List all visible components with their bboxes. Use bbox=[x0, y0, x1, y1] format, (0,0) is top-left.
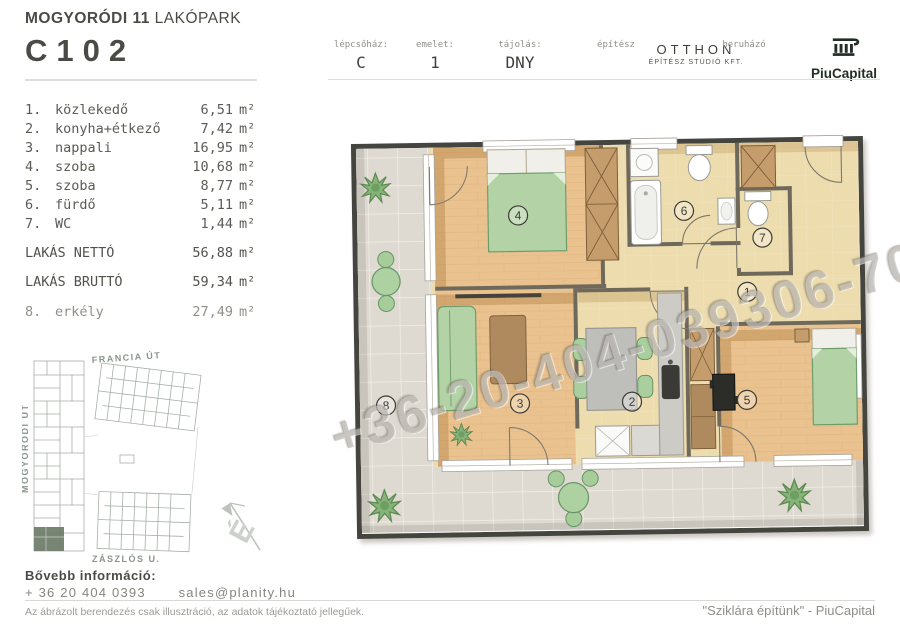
corridor-cabinets bbox=[690, 328, 716, 448]
project-title-rest: LAKÓPARK bbox=[150, 10, 241, 27]
total-unit: m² bbox=[239, 273, 263, 292]
balcony-row: 8.erkély27,49m² bbox=[25, 303, 263, 322]
bathtub bbox=[631, 180, 662, 244]
room-unit: m² bbox=[239, 158, 263, 177]
room-num: 5. bbox=[25, 177, 55, 196]
field-staircase-value: C bbox=[328, 53, 394, 72]
field-investor-label-box: beruházó bbox=[722, 40, 766, 50]
room-row: 1.közlekedő6,51m² bbox=[25, 101, 263, 120]
total-label: LAKÁS BRUTTÓ bbox=[25, 273, 123, 292]
field-floor-value: 1 bbox=[404, 53, 466, 72]
field-floor: emelet: 1 bbox=[404, 40, 466, 72]
room-area: 1,44 bbox=[71, 215, 233, 234]
svg-text:2: 2 bbox=[629, 395, 636, 409]
room-num: 4. bbox=[25, 158, 55, 177]
field-architect-label: építész bbox=[596, 40, 636, 50]
washing-machine bbox=[630, 148, 658, 176]
field-orientation-value: DNY bbox=[478, 53, 562, 72]
room-name: nappali bbox=[55, 139, 112, 158]
room-label-5: 5 bbox=[737, 390, 756, 409]
room-area: 7,42 bbox=[161, 120, 233, 139]
room5-bed bbox=[812, 328, 858, 425]
room5-nightstand bbox=[795, 329, 809, 342]
svg-text:4: 4 bbox=[515, 209, 522, 223]
room-label-1: 1 bbox=[738, 282, 757, 301]
field-orientation: tájolás: DNY bbox=[478, 40, 562, 72]
hall-closet bbox=[741, 145, 776, 188]
room-area: 5,11 bbox=[96, 196, 233, 215]
room-label-8: 8 bbox=[376, 396, 395, 415]
field-staircase: lépcsőház: C bbox=[328, 40, 394, 72]
field-staircase-label: lépcsőház: bbox=[328, 40, 394, 50]
total-gross-row: LAKÁS BRUTTÓ59,34m² bbox=[25, 273, 263, 292]
room-label-4: 4 bbox=[508, 206, 527, 225]
floor-plan: 1 2 3 4 5 6 7 8 bbox=[337, 122, 884, 554]
investor-logo-box: PiuCapital bbox=[806, 36, 882, 81]
room-name: szoba bbox=[55, 158, 96, 177]
field-investor-label: beruházó bbox=[722, 40, 766, 50]
street-label-zaszlos: ZÁSZLÓS U. bbox=[92, 553, 161, 564]
slogan-text: "Sziklára építünk" - PiuCapital bbox=[702, 603, 875, 618]
room-row: 7.WC1,44m² bbox=[25, 215, 263, 234]
room-name: konyha+étkező bbox=[55, 120, 161, 139]
room4-wardrobe bbox=[585, 148, 619, 260]
room-label-2: 2 bbox=[622, 392, 641, 411]
room-label-7: 7 bbox=[753, 228, 772, 247]
svg-text:1: 1 bbox=[744, 285, 751, 299]
site-plan: FRANCIA ÚT MOGYORÓDI ÚT ZÁSZLÓS U. É bbox=[22, 345, 272, 570]
room-unit: m² bbox=[239, 303, 263, 322]
total-area: 59,34 bbox=[123, 273, 233, 292]
header-underline bbox=[328, 79, 880, 80]
field-architect-label-box: építész bbox=[596, 40, 636, 50]
room-unit: m² bbox=[239, 196, 263, 215]
street-label-mogyorodi: MOGYORÓDI ÚT bbox=[22, 404, 30, 494]
total-area: 56,88 bbox=[114, 244, 233, 263]
field-orientation-label: tájolás: bbox=[478, 40, 562, 50]
room-area: 8,77 bbox=[96, 177, 233, 196]
room-num: 7. bbox=[25, 215, 55, 234]
contact-phone: + 36 20 404 0393 bbox=[25, 585, 146, 600]
room-unit: m² bbox=[239, 101, 263, 120]
total-label: LAKÁS NETTÓ bbox=[25, 244, 114, 263]
room-num: 8. bbox=[25, 303, 55, 322]
field-floor-label: emelet: bbox=[404, 40, 466, 50]
stove bbox=[710, 374, 739, 410]
unit-id-underline bbox=[25, 79, 257, 81]
disclaimer-text: Az ábrázolt berendezés csak illusztráció… bbox=[25, 606, 364, 618]
info-label: Bővebb információ: bbox=[25, 568, 156, 583]
architect-subname: ÉPÍTÉSZ STÚDIÓ KFT. bbox=[638, 59, 754, 66]
piucapital-logo-icon bbox=[826, 36, 862, 60]
room-num: 6. bbox=[25, 196, 55, 215]
svg-text:3: 3 bbox=[517, 397, 524, 411]
room-area: 10,68 bbox=[96, 158, 233, 177]
bath-sink bbox=[718, 198, 735, 224]
room3-sofa bbox=[437, 306, 477, 411]
room-area: 27,49 bbox=[104, 303, 233, 322]
total-net-row: LAKÁS NETTÓ56,88m² bbox=[25, 244, 263, 263]
room-row: 6.fürdő5,11m² bbox=[25, 196, 263, 215]
room-row: 2.konyha+étkező7,42m² bbox=[25, 120, 263, 139]
svg-text:6: 6 bbox=[681, 204, 688, 218]
svg-text:8: 8 bbox=[383, 399, 390, 413]
room-list: 1.közlekedő6,51m² 2.konyha+étkező7,42m² … bbox=[25, 101, 263, 322]
room-name: szoba bbox=[55, 177, 96, 196]
total-unit: m² bbox=[239, 244, 263, 263]
site-buildings bbox=[34, 361, 201, 552]
room-name: erkély bbox=[55, 303, 104, 322]
street-label-francia: FRANCIA ÚT bbox=[91, 349, 161, 365]
room-unit: m² bbox=[239, 215, 263, 234]
room-num: 2. bbox=[25, 120, 55, 139]
room-unit: m² bbox=[239, 139, 263, 158]
room-area: 16,95 bbox=[112, 139, 233, 158]
unit-id: C102 bbox=[25, 33, 135, 69]
project-title-bold: MOGYORÓDI 11 bbox=[25, 10, 150, 27]
room-name: WC bbox=[55, 215, 71, 234]
room-name: fürdő bbox=[55, 196, 96, 215]
svg-text:5: 5 bbox=[744, 393, 751, 407]
room-row: 4.szoba10,68m² bbox=[25, 158, 263, 177]
room3-table bbox=[490, 315, 527, 384]
room-unit: m² bbox=[239, 120, 263, 139]
room-name: közlekedő bbox=[55, 101, 128, 120]
room-num: 1. bbox=[25, 101, 55, 120]
room-label-3: 3 bbox=[510, 394, 529, 413]
site-highlighted-unit bbox=[34, 527, 64, 551]
room-row: 3.nappali16,95m² bbox=[25, 139, 263, 158]
contact-email: sales@planity.hu bbox=[179, 585, 296, 600]
room4-bed bbox=[487, 149, 567, 252]
north-arrow-icon: É bbox=[222, 503, 262, 550]
room-area: 6,51 bbox=[128, 101, 233, 120]
project-title: MOGYORÓDI 11 LAKÓPARK bbox=[25, 10, 241, 28]
room-num: 3. bbox=[25, 139, 55, 158]
room-row: 5.szoba8,77m² bbox=[25, 177, 263, 196]
room-label-6: 6 bbox=[674, 201, 693, 220]
room-unit: m² bbox=[239, 177, 263, 196]
footer-divider bbox=[25, 600, 875, 601]
contact-row: + 36 20 404 0393 sales@planity.hu bbox=[25, 585, 296, 600]
svg-text:7: 7 bbox=[759, 231, 766, 245]
